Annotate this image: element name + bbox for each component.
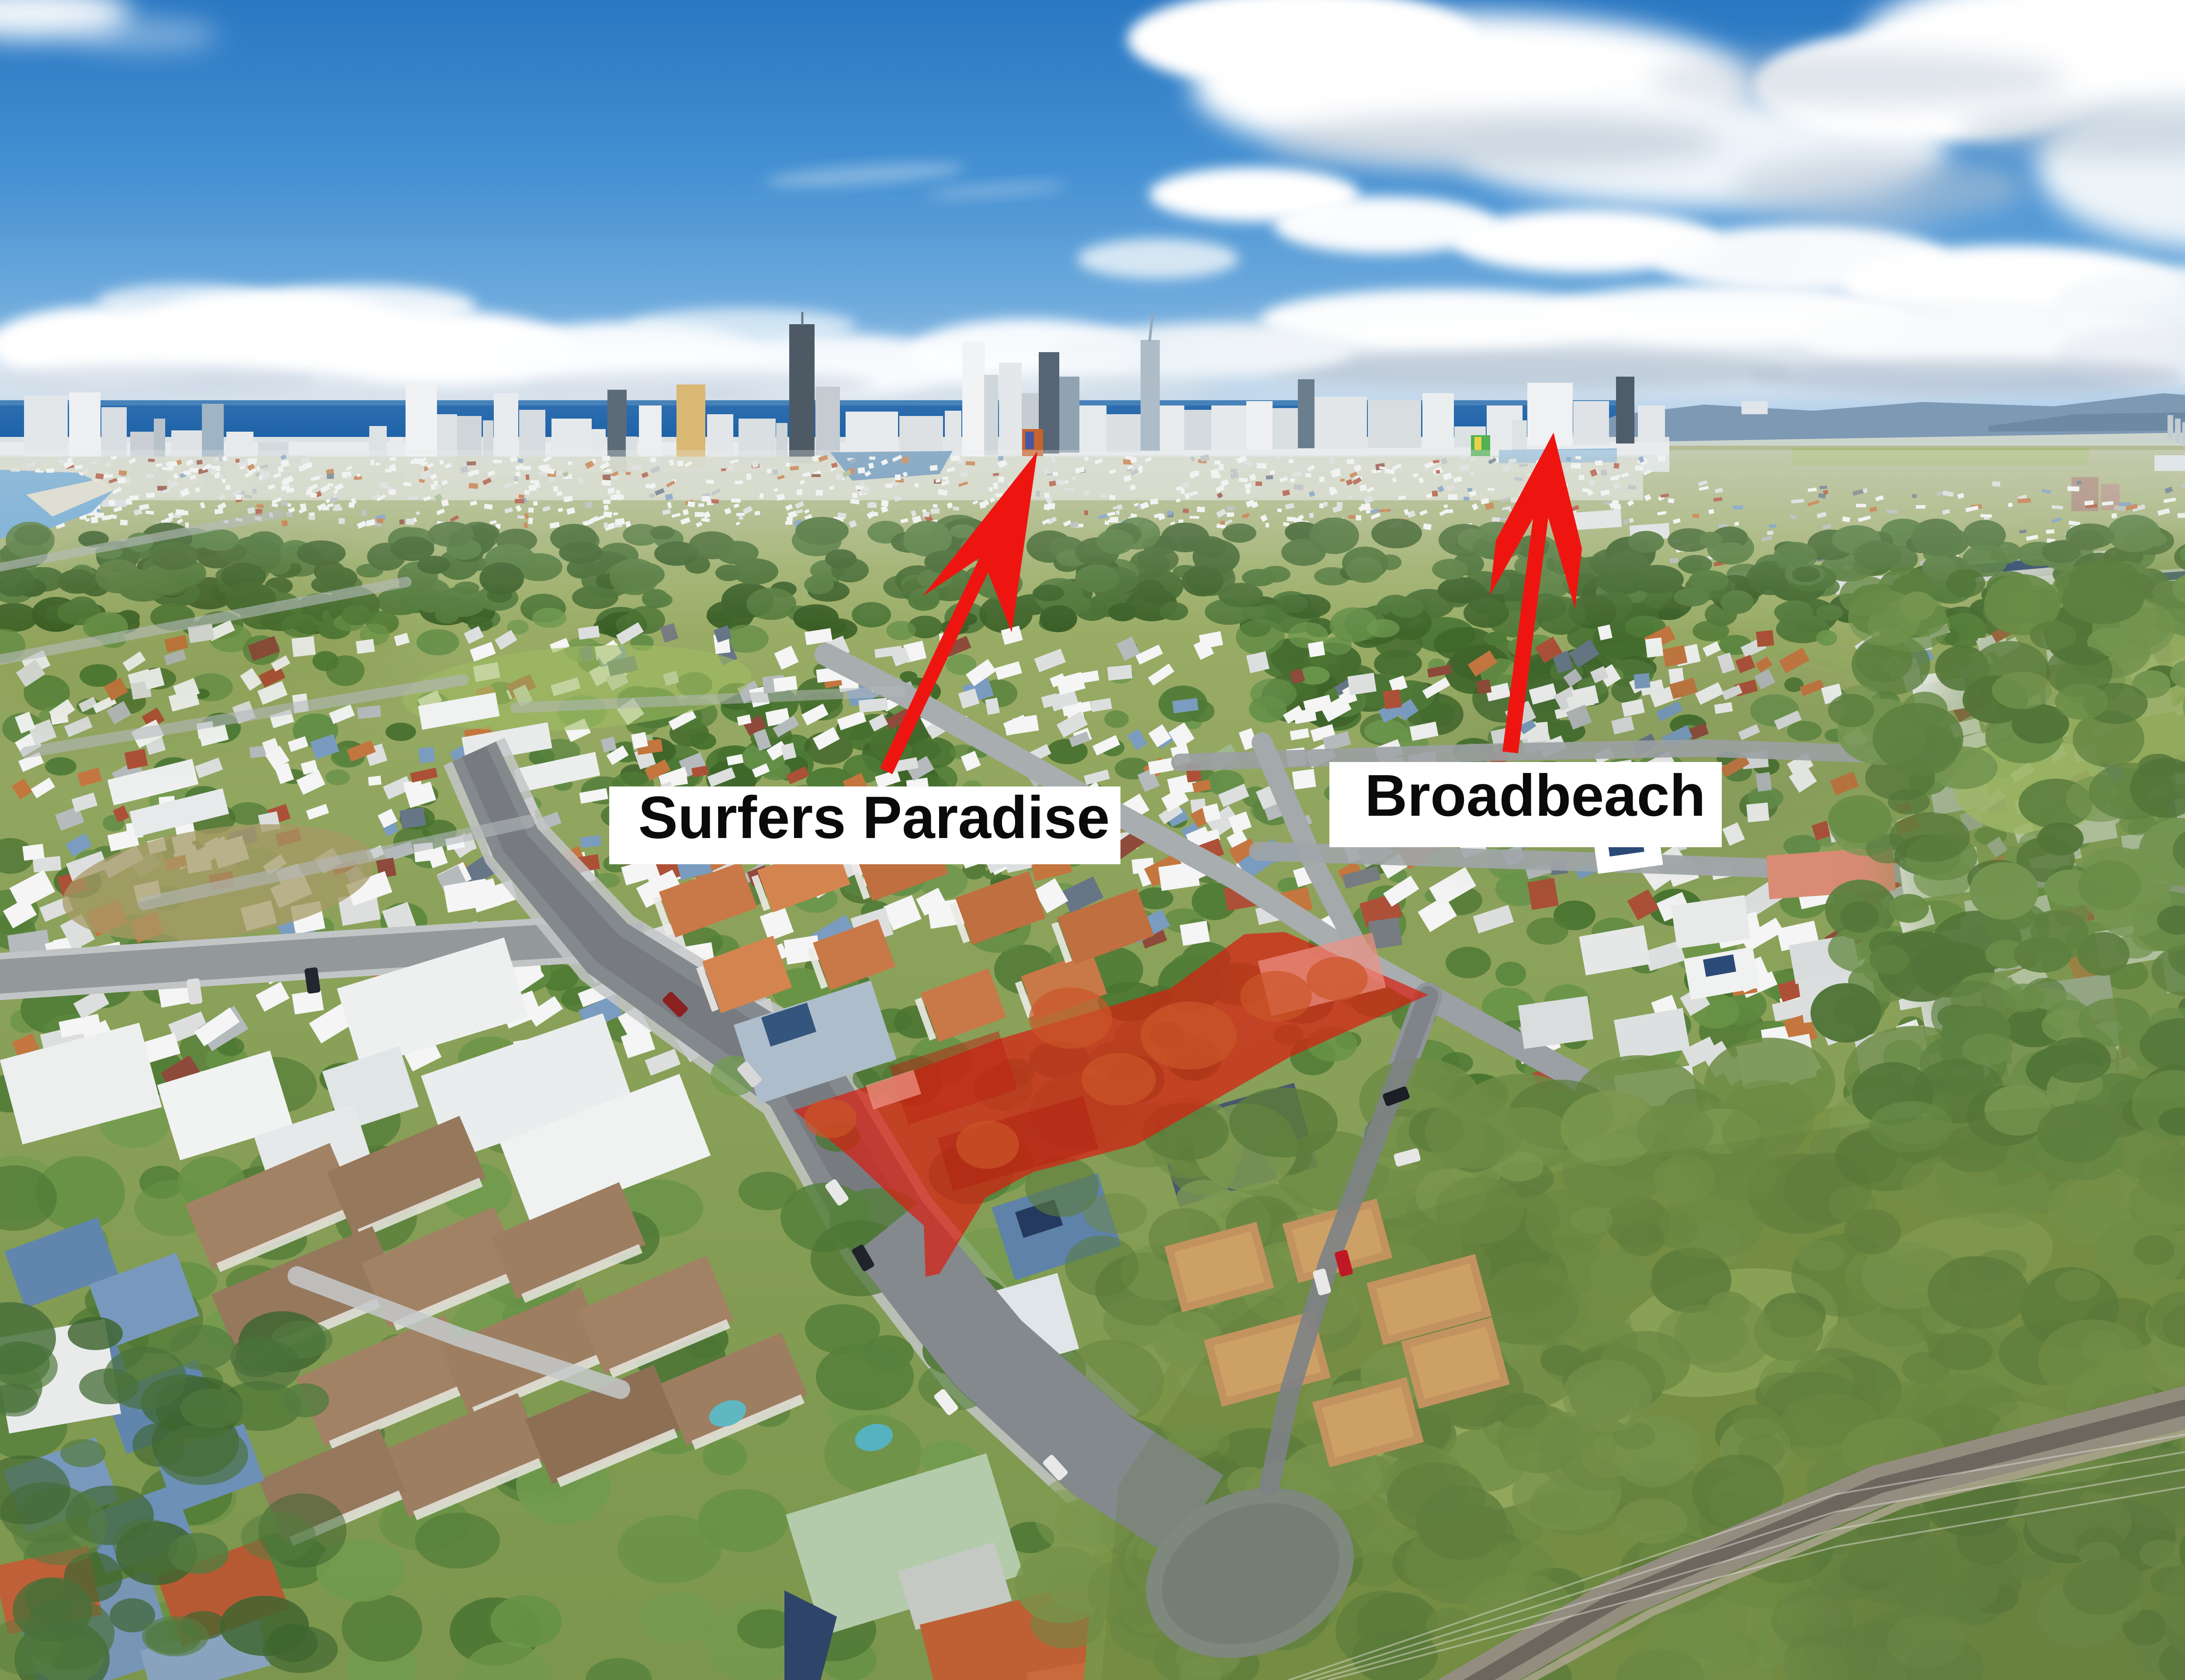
svg-text:Broadbeach: Broadbeach (1365, 762, 1706, 828)
svg-text:Surfers Paradise: Surfers Paradise (638, 784, 1110, 851)
